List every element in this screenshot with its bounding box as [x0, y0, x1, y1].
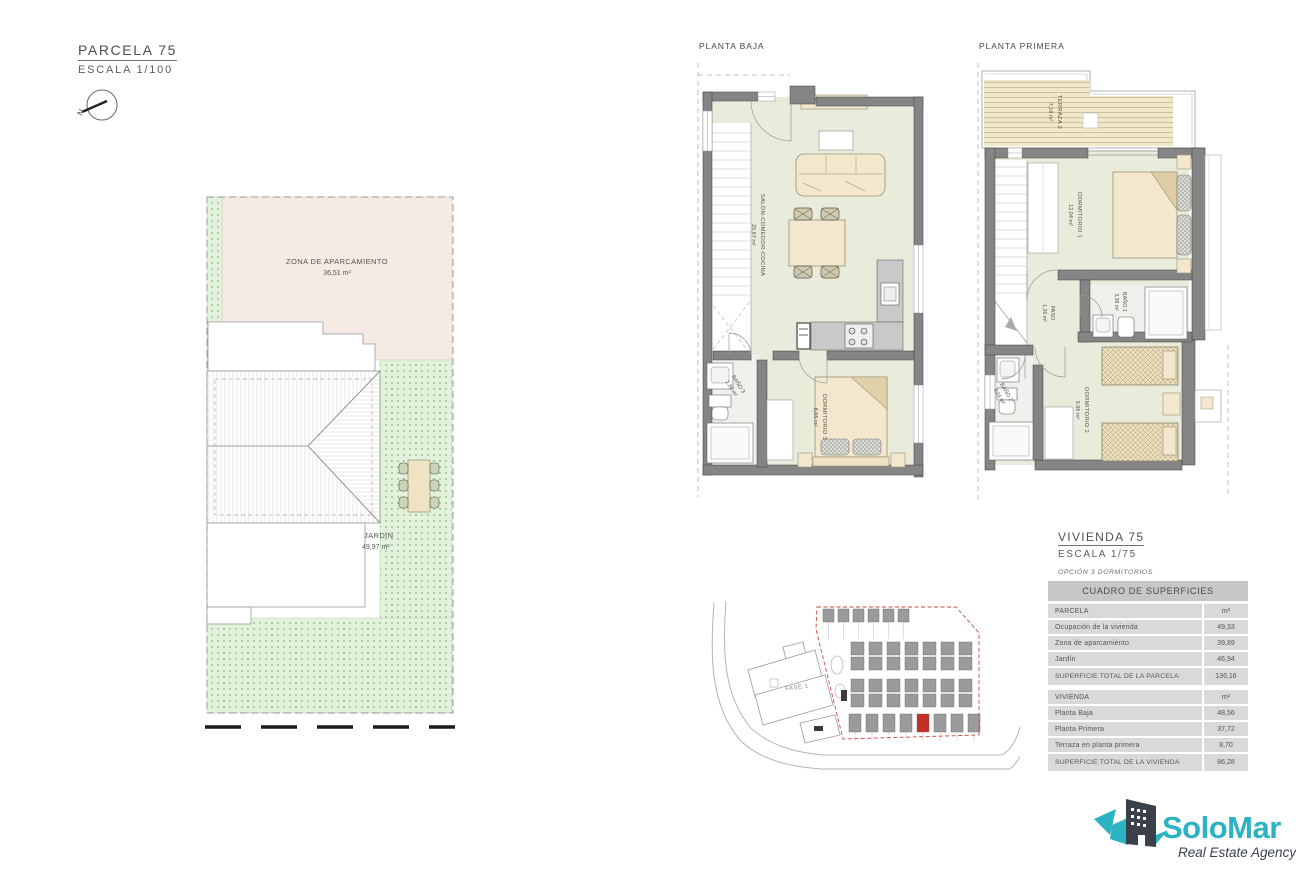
table-row: Ocupación de la vivienda 49,33	[1048, 620, 1248, 634]
fase1-building	[748, 642, 845, 743]
parking-area: 36,51 m²	[323, 270, 351, 277]
planta-primera-plan: TERRAZA 2 7,18 m² DORMITORIO 1 12,04 m² …	[973, 55, 1233, 505]
surfaces-table-title: CUADRO DE SUPERFICIES	[1048, 581, 1248, 601]
table-row-parcela-header: PARCELA m²	[1048, 604, 1248, 618]
table-row: Terraza en planta primera 8,70	[1048, 738, 1248, 752]
vivienda-title-block: VIVIENDA 75 ESCALA 1/75 OPCIÓN 3 DORMITO…	[1058, 528, 1153, 576]
terraza-area: 7,18 m²	[1047, 103, 1053, 122]
table-row: Zona de aparcamiento 39,89	[1048, 636, 1248, 650]
north-label: N	[76, 108, 87, 118]
dorm2-area: 9,96 m²	[1074, 401, 1080, 420]
vivienda-option: OPCIÓN 3 DORMITORIOS	[1058, 569, 1153, 576]
stairs	[709, 123, 751, 361]
garden-area-label: 49,97 m²	[362, 544, 390, 551]
garden-table	[399, 460, 439, 512]
site-plan: ZONA DE APARCAMIENTO 36,51 m² JARDIN 49,…	[203, 194, 458, 739]
north-compass-icon: N	[74, 84, 124, 128]
sofa	[796, 154, 885, 196]
table-row-parcela-total: SUPERFICIE TOTAL DE LA PARCELA 136,16	[1048, 668, 1248, 685]
surfaces-table: CUADRO DE SUPERFICIES PARCELA m² Ocupaci…	[1048, 581, 1248, 773]
side-table	[819, 131, 853, 150]
location-map: FASE 1	[700, 595, 1020, 775]
bano1-label: BAÑO 1	[1121, 292, 1128, 312]
parcela-title-block: PARCELA 75 ESCALA 1/100	[78, 42, 177, 76]
paso-area: 1,26 m²	[1041, 304, 1047, 322]
terraza-label: TERRAZA 2	[1056, 95, 1062, 129]
paso-label: PASO	[1049, 306, 1055, 322]
table-row: Planta Primera 37,72	[1048, 722, 1248, 736]
planta-baja-title: PLANTA BAJA	[699, 41, 765, 51]
dorm2-label: DORMITORIO 2	[1083, 387, 1089, 433]
salon-area: 25,67 m²	[750, 224, 756, 246]
dorm3-area: 8,65 m²	[812, 408, 818, 427]
table-row-vivienda-header: VIVIENDA m²	[1048, 690, 1248, 704]
parcela-scale: ESCALA 1/100	[78, 64, 177, 76]
parcela-title: PARCELA 75	[78, 42, 177, 61]
garden-label: JARDIN	[364, 531, 394, 540]
table-row: Jardín 46,94	[1048, 652, 1248, 666]
vivienda-scale: ESCALA 1/75	[1058, 549, 1153, 560]
terrace	[982, 71, 1195, 148]
logo-building-icon	[1094, 799, 1168, 847]
logo-tagline: Real Estate Agency	[1178, 845, 1296, 860]
vivienda-title: VIVIENDA 75	[1058, 530, 1144, 546]
housing-grid	[823, 609, 980, 741]
table-row-vivienda-total: SUPERFICIE TOTAL DE LA VIVIENDA 86,28	[1048, 754, 1248, 771]
logo-brand-text: SoloMar	[1162, 810, 1281, 845]
stairs-upper	[994, 160, 1027, 345]
solomar-logo: SoloMar Real Estate Agency	[1086, 795, 1296, 865]
salon-label: SALÓN-COMEDOR-COCINA	[759, 194, 766, 276]
closet	[767, 400, 793, 460]
planta-primera-title: PLANTA PRIMERA	[979, 41, 1065, 51]
dorm1-area: 12,04 m²	[1067, 204, 1073, 226]
dorm1-label: DORMITORIO 1	[1076, 192, 1082, 238]
dorm3-label: DORMITORIO 3	[821, 394, 827, 440]
planta-baja-plan: SALÓN-COMEDOR-COCINA 25,67 m² BAÑO 3 2,8…	[695, 55, 930, 505]
plan-sheet: { "parcela_block": { "title": "PARCELA 7…	[0, 0, 1300, 869]
roof-plan	[207, 371, 380, 523]
bano1-area: 3,38 m²	[1113, 293, 1119, 311]
table-row: Planta Baja 48,56	[1048, 706, 1248, 720]
parking-label: ZONA DE APARCAMIENTO	[286, 257, 388, 266]
